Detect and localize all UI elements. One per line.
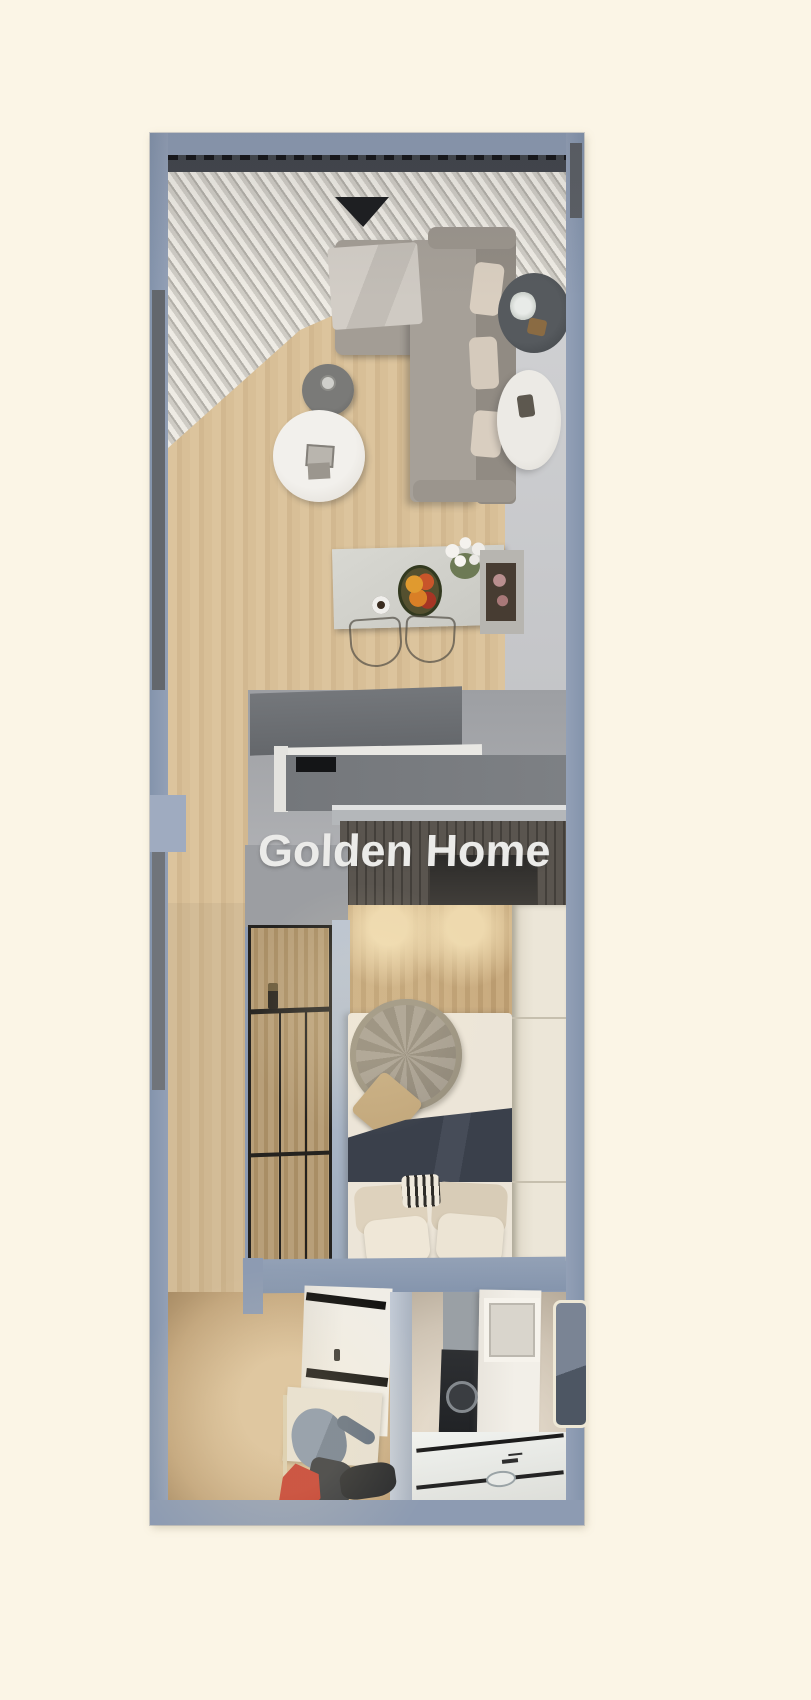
left-corridor-floor bbox=[168, 903, 245, 1292]
floor-plan-canvas: Golden Home bbox=[0, 0, 811, 1700]
laundry-top-box bbox=[443, 1292, 480, 1352]
washer-door-ring bbox=[446, 1381, 478, 1413]
bedroom-partition-wall bbox=[243, 1257, 566, 1294]
sofa-pillow-2 bbox=[469, 336, 500, 389]
partition-mullion-1 bbox=[279, 1012, 281, 1265]
headboard-wall bbox=[340, 905, 514, 1015]
bed-pillow-accent-striped bbox=[401, 1174, 441, 1208]
wall-bottom bbox=[150, 1500, 584, 1525]
wall-top bbox=[150, 133, 584, 155]
built-in-closet-column bbox=[512, 905, 566, 1261]
sofa-armrest-top bbox=[428, 227, 516, 249]
planter-flowers bbox=[510, 291, 536, 321]
throw-blanket bbox=[327, 242, 423, 330]
curtain-track-dashes bbox=[168, 155, 566, 160]
wall-stub-left bbox=[150, 795, 186, 852]
round-side-table bbox=[497, 370, 561, 470]
closet-column-seam-1 bbox=[512, 1017, 566, 1019]
cabinet-framed-panel bbox=[484, 1298, 540, 1362]
magazine-2 bbox=[308, 462, 331, 479]
window-inset-right-top bbox=[570, 143, 582, 218]
sofa-armrest-bottom bbox=[413, 480, 516, 502]
coffee-cup bbox=[372, 596, 390, 614]
partition-mullion-2 bbox=[305, 1012, 307, 1265]
shoe-cabinet-hook bbox=[334, 1349, 340, 1361]
fruit-platter bbox=[398, 565, 442, 617]
cooktop-inset bbox=[296, 757, 336, 772]
window-inset-left-lower bbox=[152, 848, 165, 1090]
window-inset-left-upper bbox=[152, 290, 165, 690]
watermark: Golden Home bbox=[257, 825, 551, 877]
closet-column-seam-2 bbox=[512, 1181, 566, 1183]
coffee-table-knob bbox=[320, 375, 336, 391]
planter-pot bbox=[527, 317, 548, 336]
sideboard-niche bbox=[486, 563, 516, 621]
glass-partition-frame bbox=[248, 925, 332, 1265]
candle-holder bbox=[268, 983, 278, 1009]
side-table-decor bbox=[517, 394, 536, 418]
led-mirror bbox=[553, 1300, 589, 1428]
bedroom-wall-stub bbox=[243, 1258, 263, 1314]
apartment-floor-plan: Golden Home bbox=[150, 133, 584, 1525]
